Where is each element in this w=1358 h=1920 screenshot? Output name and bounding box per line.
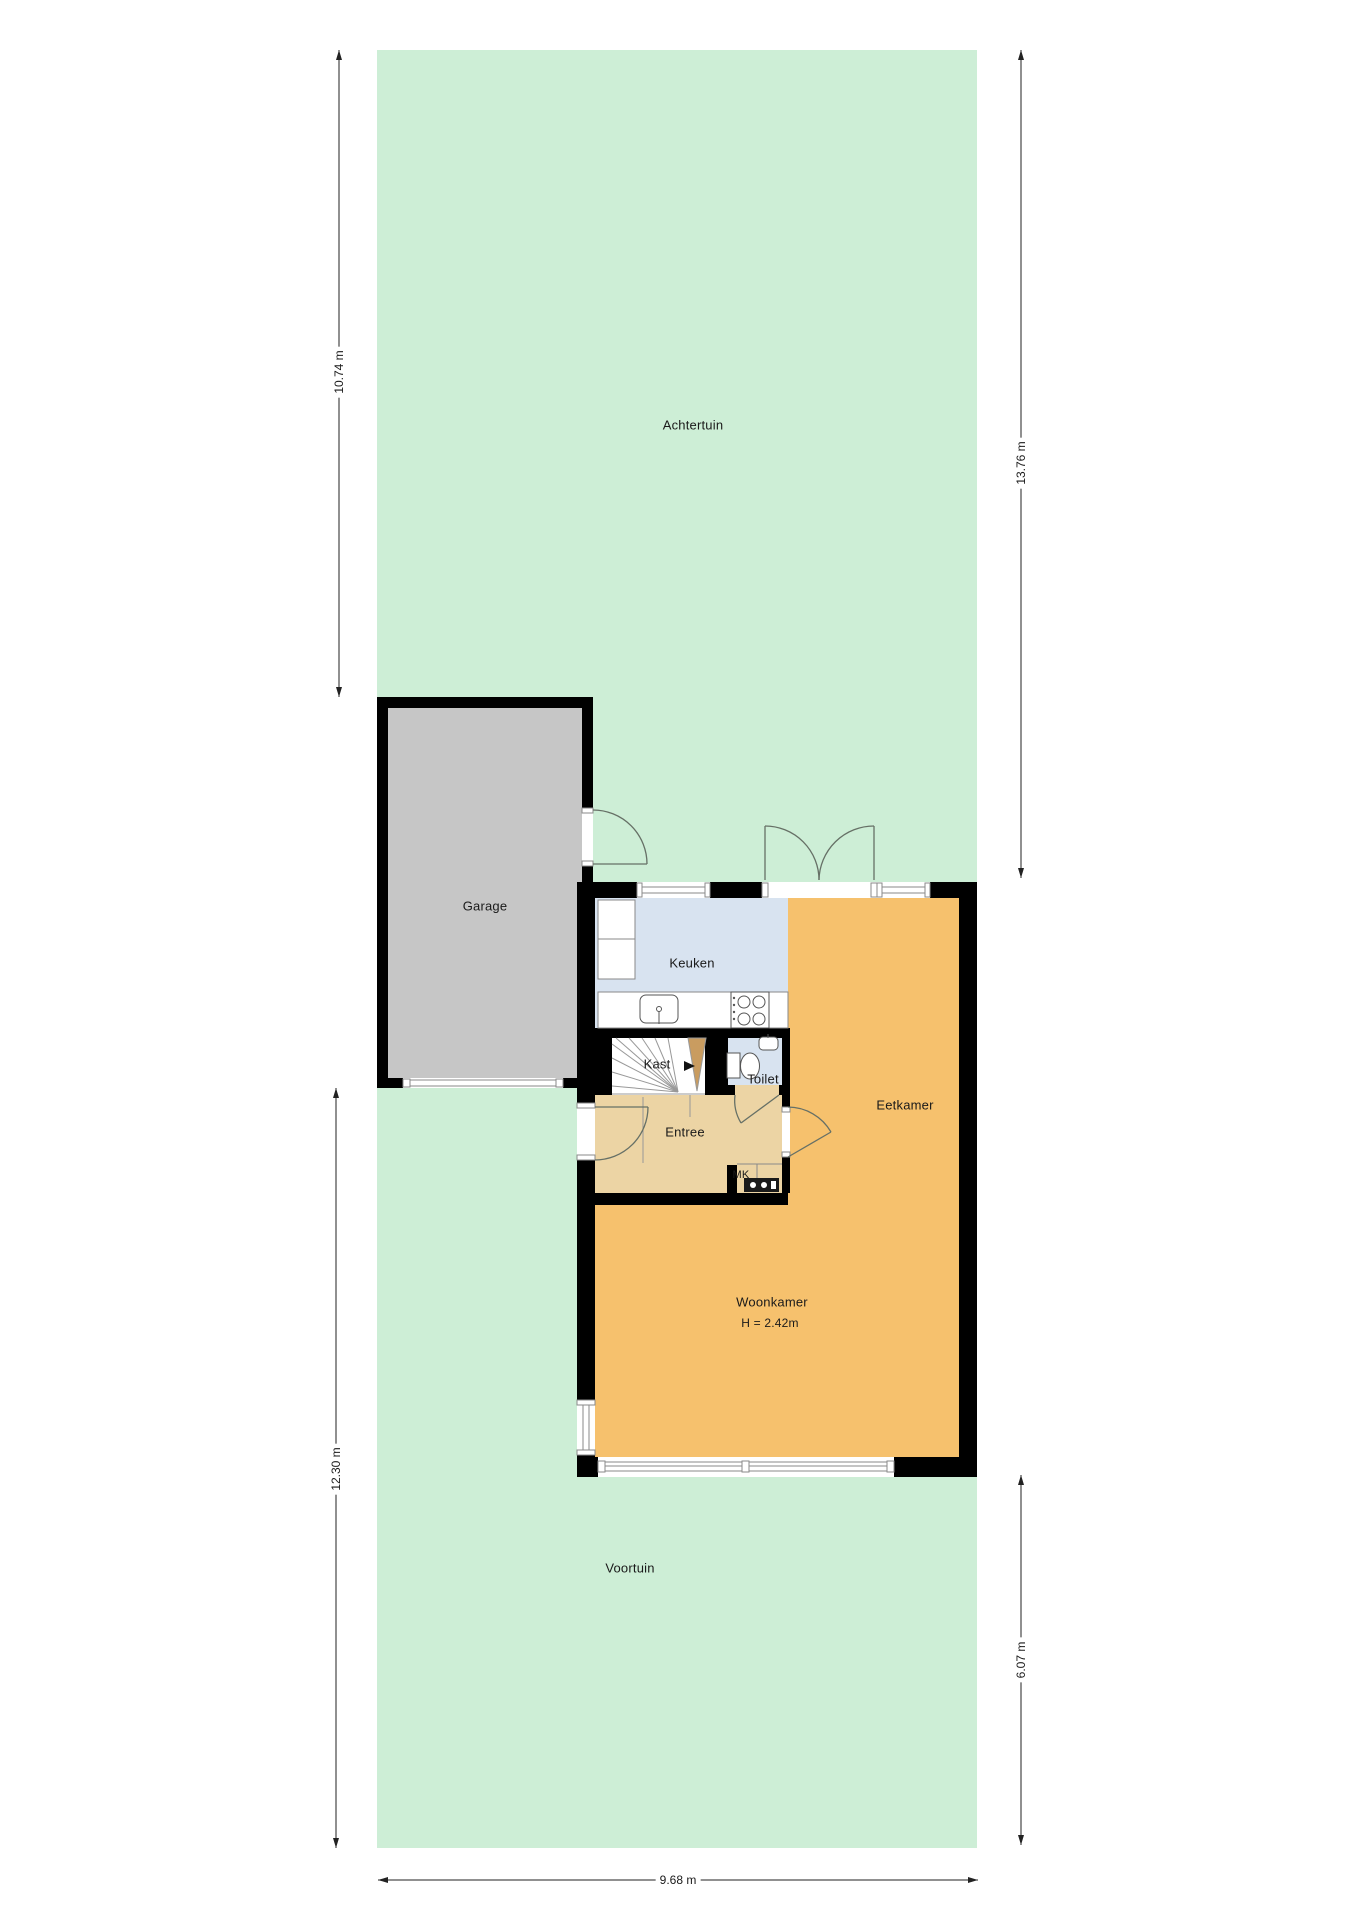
window-jamb <box>577 1400 595 1405</box>
arrowhead-icon <box>968 1877 978 1883</box>
wall-kast-toilet <box>705 1038 728 1095</box>
wall-eetkamer-lower <box>782 1157 790 1193</box>
door-jamb <box>577 1103 595 1108</box>
sink-faucet-head <box>657 1007 662 1012</box>
garden-double-door-opening <box>762 882 877 898</box>
room-label-achtertuin: Achtertuin <box>663 418 724 433</box>
garage-wall-top <box>377 697 593 708</box>
door-jamb <box>556 1079 563 1087</box>
window-jamb <box>887 1461 894 1472</box>
room-label-keuken: Keuken <box>669 956 714 971</box>
floor-plan-canvas: Achtertuin Garage Keuken Eetkamer Kast T… <box>0 0 1358 1920</box>
house-wall-top-2 <box>710 882 762 898</box>
arrowhead-icon <box>1018 1835 1024 1845</box>
house-wall-bottom-right <box>894 1457 977 1477</box>
wall-toilet-bottom-left <box>728 1085 735 1095</box>
arrowhead-icon <box>336 687 342 697</box>
arrowhead-icon <box>336 50 342 60</box>
meter-dial <box>761 1182 767 1188</box>
door-jamb <box>782 1107 790 1112</box>
keuken-window-opening <box>637 882 710 898</box>
door-jamb <box>871 883 877 897</box>
window-jamb <box>577 1450 595 1455</box>
house-wall-top-1 <box>577 882 637 898</box>
window-jamb <box>598 1461 605 1472</box>
room-height-label: H = 2.42m <box>741 1316 799 1330</box>
woonkamer-side-window <box>577 1400 595 1455</box>
woonkamer-floor <box>595 1205 959 1457</box>
room-label-voortuin: Voortuin <box>605 1561 654 1576</box>
arrowhead-icon <box>1018 1475 1024 1485</box>
toilet-basin <box>759 1037 778 1050</box>
front-door-opening <box>577 1103 595 1160</box>
arrowhead-icon <box>1018 868 1024 878</box>
door-jamb <box>403 1079 410 1087</box>
wall-eetkamer-upper <box>782 1028 790 1107</box>
arrowhead-icon <box>333 1838 339 1848</box>
stove-burner <box>753 996 765 1008</box>
window-mullion <box>742 1461 749 1472</box>
house-wall-left-1 <box>577 898 595 1103</box>
stove-burner <box>738 1013 750 1025</box>
door-jamb <box>762 883 768 897</box>
kitchen-appliance <box>598 939 635 979</box>
garage-door-panel <box>406 1080 560 1086</box>
room-label-eetkamer: Eetkamer <box>876 1098 933 1113</box>
garage-wall-bottom-left <box>377 1078 403 1088</box>
room-label-garage: Garage <box>463 899 508 914</box>
dimension-right-top: 13.76 m <box>1014 437 1028 488</box>
toilet-cistern <box>727 1053 740 1078</box>
toilet-door-opening <box>735 1085 779 1095</box>
room-label-mk: MK <box>733 1169 750 1181</box>
garage-side-door-opening <box>582 808 593 866</box>
stove-burner <box>753 1013 765 1025</box>
arrowhead-icon <box>378 1877 388 1883</box>
door-jamb <box>582 861 593 866</box>
window-jamb <box>637 883 642 897</box>
door-jamb <box>582 808 593 813</box>
dimension-right-bottom: 6.07 m <box>1014 1638 1028 1683</box>
wall-left-of-kast <box>595 1028 612 1095</box>
garage-floor <box>388 708 582 1078</box>
dimension-left-top: 10.74 m <box>332 346 346 397</box>
room-label-entree: Entree <box>665 1125 705 1140</box>
house-wall-bottom-left <box>577 1457 598 1477</box>
arrowhead-icon <box>333 1088 339 1098</box>
arrowhead-icon <box>1018 50 1024 60</box>
window-jamb <box>877 883 882 897</box>
dimension-bottom: 9.68 m <box>656 1873 701 1887</box>
dimension-left-bottom: 12.30 m <box>329 1443 343 1494</box>
meter-slot <box>771 1181 776 1189</box>
stove-burner <box>738 996 750 1008</box>
room-label-woonkamer: Woonkamer <box>736 1295 808 1310</box>
garage-wall-left <box>377 708 388 1088</box>
eetkamer-window-opening <box>877 882 930 898</box>
kitchen-appliance <box>598 900 635 939</box>
room-label-toilet: Toilet <box>747 1072 779 1087</box>
house-wall-right <box>959 882 977 1477</box>
wall-entree-woonkamer <box>577 1193 788 1205</box>
wall-under-counter <box>595 1028 790 1038</box>
room-label-kast: Kast <box>644 1057 671 1072</box>
window-jamb <box>925 883 930 897</box>
door-jamb <box>577 1155 595 1160</box>
meter-dial <box>750 1182 756 1188</box>
window-jamb <box>705 883 710 897</box>
eetkamer-door-opening <box>782 1107 790 1157</box>
